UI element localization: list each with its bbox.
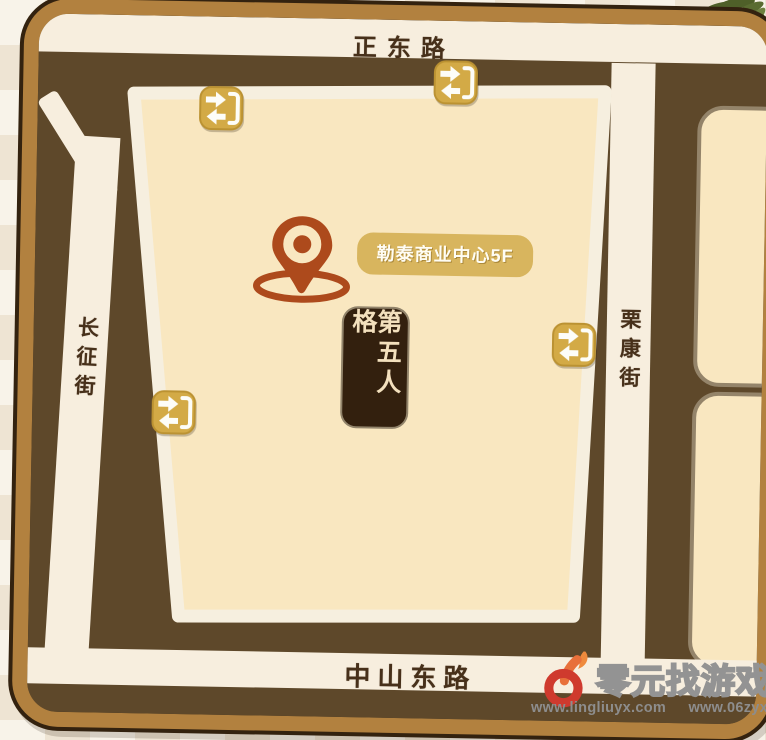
location-pin-icon bbox=[246, 211, 358, 308]
venue-sign: 第五人格 bbox=[342, 308, 408, 427]
entrance-arrows-icon bbox=[551, 322, 597, 368]
street-label-right: 栗康街 bbox=[613, 308, 645, 396]
street-label-bottom: 中山东路 bbox=[344, 656, 477, 695]
watermark-urls: www.lingliuyx.com www.06zyx.com bbox=[531, 700, 766, 716]
street-label-top: 正东路 bbox=[353, 27, 456, 64]
watermark-url-right: www.06zyx.com bbox=[688, 700, 766, 716]
watermark-brand-text: 零元找游戏 bbox=[596, 654, 766, 703]
entrance-arrows-icon bbox=[198, 85, 244, 131]
venue-sign-text: 第五人格 bbox=[349, 308, 401, 427]
building-block bbox=[688, 391, 766, 669]
map-frame: 长征街 栗康街 正东路 中山东路 bbox=[11, 0, 766, 740]
street-label-left: 长征街 bbox=[67, 315, 102, 404]
page: { "map": { "streets": { "top": "正东路", "b… bbox=[0, 0, 766, 722]
destination-label: 勒泰商业中心5F bbox=[357, 232, 534, 277]
watermark-url-left: www.lingliuyx.com bbox=[531, 700, 666, 716]
entrance-arrows-icon bbox=[433, 60, 479, 106]
brand-logo-icon bbox=[536, 648, 600, 708]
map-canvas: 长征街 栗康街 正东路 中山东路 bbox=[27, 13, 766, 724]
building-block bbox=[693, 105, 766, 388]
entrance-arrows-icon bbox=[151, 389, 197, 435]
